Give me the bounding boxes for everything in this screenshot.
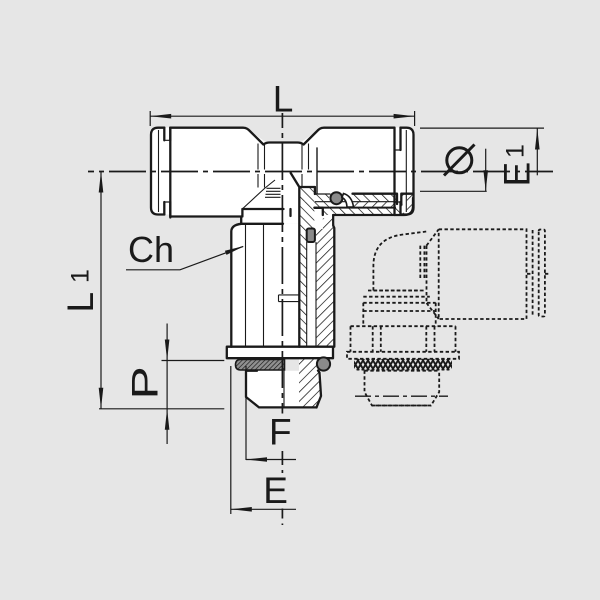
svg-text:1: 1 [67,269,95,283]
svg-text:1: 1 [502,144,530,158]
svg-text:Ch: Ch [128,229,174,270]
svg-text:P: P [125,366,166,399]
svg-text:F: F [269,411,292,452]
svg-text:L: L [273,79,294,120]
svg-text:L: L [60,292,101,313]
svg-text:E: E [497,162,538,187]
svg-text:E: E [263,470,288,511]
